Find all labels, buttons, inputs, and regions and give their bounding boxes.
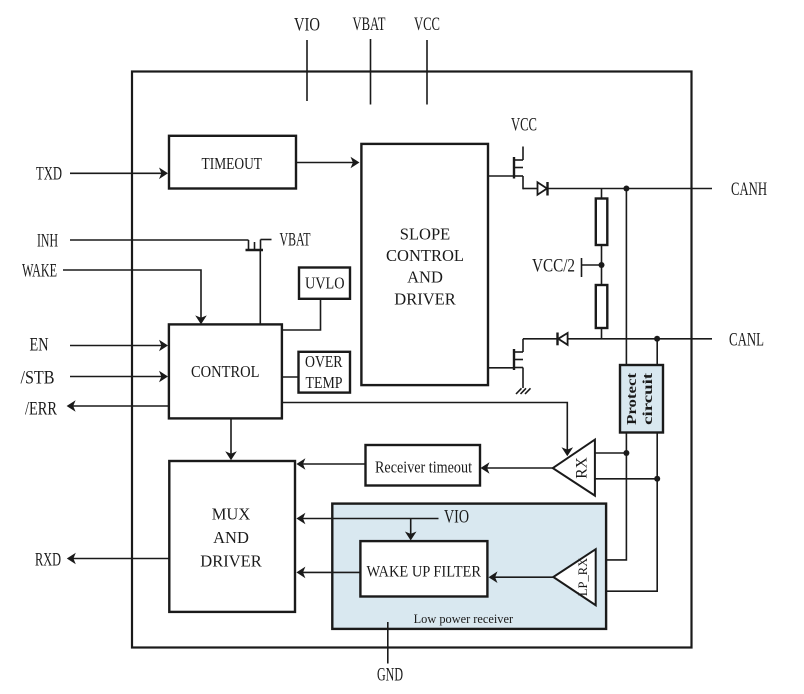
svg-text:UVLO: UVLO bbox=[305, 274, 345, 293]
svg-text:OVER: OVER bbox=[305, 352, 343, 371]
svg-text:CANL: CANL bbox=[729, 330, 764, 351]
svg-text:VBAT: VBAT bbox=[353, 14, 386, 35]
svg-text:VCC/2: VCC/2 bbox=[532, 256, 575, 277]
svg-text:LP_RX: LP_RX bbox=[576, 558, 590, 596]
svg-text:AND: AND bbox=[213, 528, 249, 547]
svg-text:VIO: VIO bbox=[294, 15, 320, 36]
svg-text:VIO: VIO bbox=[444, 507, 469, 528]
svg-text:MUX: MUX bbox=[212, 505, 251, 524]
svg-text:RX: RX bbox=[574, 457, 591, 479]
svg-text:TXD: TXD bbox=[36, 164, 62, 185]
svg-text:Low power receiver: Low power receiver bbox=[414, 611, 514, 626]
svg-text:Protect: Protect bbox=[625, 372, 640, 424]
svg-text:CANH: CANH bbox=[731, 179, 767, 200]
svg-text:VCC: VCC bbox=[511, 115, 537, 136]
svg-text:TEMP: TEMP bbox=[306, 373, 343, 392]
svg-text:SLOPE: SLOPE bbox=[400, 225, 450, 244]
svg-text:RXD: RXD bbox=[35, 550, 61, 571]
svg-text:CONTROL: CONTROL bbox=[191, 362, 260, 381]
svg-text:INH: INH bbox=[37, 231, 58, 252]
svg-text:AND: AND bbox=[407, 268, 443, 287]
svg-text:WAKE UP FILTER: WAKE UP FILTER bbox=[367, 564, 482, 581]
svg-text:CONTROL: CONTROL bbox=[386, 246, 464, 265]
svg-text:Receiver timeout: Receiver timeout bbox=[375, 458, 472, 477]
svg-text:GND: GND bbox=[377, 665, 403, 686]
svg-text:TIMEOUT: TIMEOUT bbox=[202, 154, 263, 173]
svg-text:DRIVER: DRIVER bbox=[394, 290, 455, 309]
svg-text:circuit: circuit bbox=[641, 372, 656, 424]
svg-text:DRIVER: DRIVER bbox=[200, 552, 261, 571]
svg-text:/STB: /STB bbox=[21, 368, 55, 389]
svg-text:WAKE: WAKE bbox=[22, 261, 57, 282]
svg-text:VCC: VCC bbox=[414, 14, 440, 35]
svg-text:/ERR: /ERR bbox=[25, 399, 57, 420]
svg-text:VBAT: VBAT bbox=[280, 230, 311, 251]
svg-text:EN: EN bbox=[30, 335, 49, 356]
